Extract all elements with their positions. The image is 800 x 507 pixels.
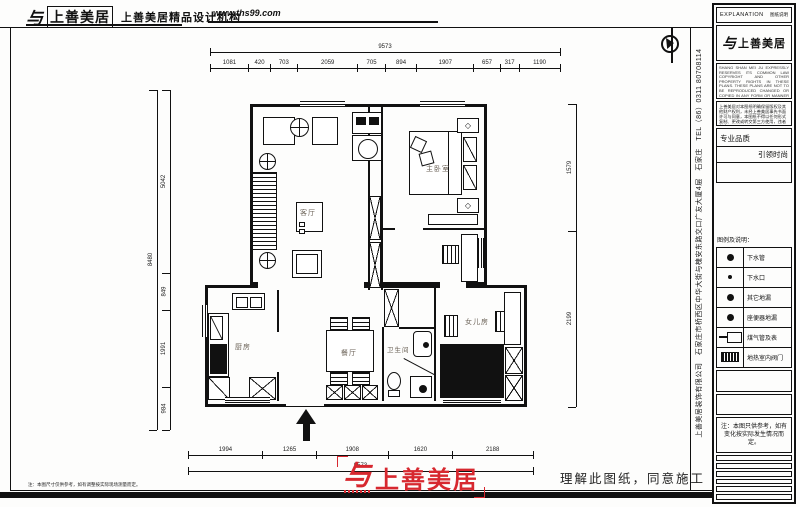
dimension-label: 2059 (320, 60, 335, 67)
quality-slogan-box: 专业品质 引领时尚 (716, 128, 792, 183)
wardrobe-xbox (505, 347, 523, 374)
logo-glyph-icon: 与 (722, 33, 736, 53)
frame-right-border (690, 27, 691, 491)
window (225, 397, 270, 403)
wardrobe (504, 292, 521, 345)
dimension-label: 2188 (485, 447, 500, 454)
website-url: www.ths99.com (213, 8, 281, 18)
legend-label: 煤气管及表 (744, 328, 791, 347)
window (443, 397, 501, 403)
stove (352, 112, 382, 134)
door-kitchen (276, 332, 280, 372)
dining-cabinet-xbox (344, 385, 361, 400)
dimension-label: 1994 (218, 447, 233, 454)
legend-label: 其它地漏 (744, 288, 791, 307)
legend-row: 下水口 (717, 268, 791, 288)
footer-logo: 与 上善美居 (337, 456, 485, 498)
dimension-segment: 317 (500, 56, 519, 68)
sink (352, 135, 382, 161)
dimension-segment: 1265 (263, 443, 316, 455)
dimension-segment: 420 (249, 56, 270, 68)
frame-left-border (10, 27, 11, 491)
legend-table: 下水管下水口其它地漏座便器地漏煤气管及表地热室内阀门 (716, 247, 792, 368)
dimension-label: 1907 (438, 60, 453, 67)
window (478, 238, 484, 268)
dot-large-icon (717, 248, 744, 267)
empty-row (716, 370, 792, 392)
dimension-segment: 2059 (298, 56, 358, 68)
footer-logo-glyph-wrap: 与 (343, 462, 371, 493)
door-master (395, 227, 423, 231)
logo-dots (344, 490, 370, 493)
dimension-label: 984 (161, 402, 168, 414)
dimension-label: 2199 (567, 311, 574, 326)
dimension-segment: 9573 (210, 40, 560, 52)
copyright-chinese: 上善美居对本图纸明确保留版权及其他财产权利，未经上善美居事先书面许可与同意，本图… (716, 101, 792, 126)
opening-living-dining (258, 282, 364, 290)
dimension-segment: 894 (385, 56, 417, 68)
bath-sink (413, 331, 432, 357)
wall-daughter-left (434, 288, 436, 401)
dimension-label: 849 (161, 285, 168, 297)
legend-label: 座便器地漏 (744, 308, 791, 327)
room-label-living: 客厅 (300, 208, 316, 218)
dimension-label: 1579 (567, 160, 574, 175)
legend-label: 下水口 (744, 268, 791, 287)
round-table (290, 118, 309, 137)
explanation-title-zh: 图纸说明 (770, 12, 788, 18)
dimension-label: 1265 (282, 447, 297, 454)
legend-row: 下水管 (717, 248, 791, 268)
thin-row (716, 486, 792, 492)
dimension-label: 703 (278, 60, 290, 67)
dimension-label: 657 (481, 60, 493, 67)
dimension-segment: 705 (358, 56, 385, 68)
frame-top-rule (0, 27, 712, 28)
empty-row (716, 394, 792, 416)
sofa (252, 172, 277, 250)
quality-top: 专业品质 (717, 129, 791, 147)
shaft-xbox (369, 242, 381, 288)
bed-bench (428, 214, 478, 225)
room-label-kitchen: 厨房 (235, 342, 251, 352)
dimension-segment: 1991 (159, 311, 170, 388)
dim-left-total: 8480 (146, 90, 158, 430)
legend-row: 其它地漏 (717, 288, 791, 308)
dining-chair (330, 372, 348, 385)
bed-daughter (440, 344, 504, 398)
quality-bottom: 引领时尚 (717, 147, 791, 163)
entry-arrow-stem (303, 424, 310, 441)
radiator (444, 315, 458, 337)
dimension-label: 5042 (161, 173, 168, 188)
dim-top-segments: 1081420703205970589419076573171190 (210, 56, 560, 69)
website-underline (208, 21, 438, 23)
copyright-english: SHANG SHAN MEI JU EXPRESSLY RESERVES ITS… (716, 63, 792, 99)
footer-logo-text: 上善美居 (375, 460, 479, 495)
approval-slogan: 理解此图纸，同意施工 (470, 468, 705, 487)
legend-label: 下水管 (744, 248, 791, 267)
dimension-label: 8480 (148, 252, 155, 267)
footer-note: 注：本图尺寸仅供参考，如有调整按实际现场测量而定。 (28, 482, 141, 488)
nightstand: ◇ (457, 118, 479, 133)
window (202, 305, 208, 337)
legend-row: 地热室内阀门 (717, 348, 791, 367)
thin-row (716, 494, 792, 500)
toilet-tank (388, 390, 400, 397)
heat-valve-icon (717, 348, 744, 367)
desk-chair (442, 245, 459, 264)
dimension-segment: 657 (474, 56, 500, 68)
dimension-segment: 1994 (188, 443, 263, 455)
thin-row (716, 463, 792, 469)
dimension-segment: 703 (270, 56, 297, 68)
title-block-panel: EXPLANATION 图纸说明 与 上善美居 SHANG SHAN MEI J… (712, 3, 796, 504)
opening-corridor (440, 282, 466, 290)
washing-machine (410, 376, 432, 398)
side-table (259, 153, 276, 170)
legend-title-area: 图例及说明： (716, 185, 792, 245)
dim-left-segments: 50428491991984 (159, 90, 171, 430)
room-label-dining: 餐厅 (341, 348, 357, 358)
refrigerator (210, 344, 227, 374)
dimension-segment: 1190 (519, 56, 560, 68)
dot-large-icon (717, 308, 744, 327)
pillow (463, 137, 477, 162)
shaft-xbox (384, 289, 399, 327)
opening-entry-door (286, 397, 324, 406)
dot-large-icon (717, 288, 744, 307)
dimension-segment: 5042 (159, 90, 170, 273)
room-label-master: 主卧室 (426, 164, 450, 174)
dimension-label: 1908 (345, 447, 360, 454)
dimension-segment: 1081 (210, 56, 249, 68)
toilet (387, 372, 401, 390)
company-address-vertical: 上善美居装饰有限公司 石家庄市桥西区中华大街与槐安东路交口广友大厦4层 石家庄 … (694, 28, 704, 458)
dim-top-total: 9573 (210, 40, 560, 53)
legend-row: 煤气管及表 (717, 328, 791, 348)
dimension-segment: 8480 (146, 90, 157, 430)
entry-arrow-icon (296, 409, 316, 424)
dining-cabinet-xbox (362, 385, 378, 400)
panel-title-row: EXPLANATION 图纸说明 (716, 7, 792, 23)
window (420, 101, 465, 107)
dimension-label: 9573 (377, 44, 392, 51)
dot-small-icon (717, 268, 744, 287)
kitchen-window-panel (210, 316, 223, 340)
panel-note: 注：本图只供参考，如有变化按实际发生情况而定。 (716, 417, 792, 453)
shaft-xbox (369, 196, 381, 240)
small-stool (299, 222, 305, 227)
dimension-segment: 2188 (452, 443, 533, 455)
blueprint-page: 与 上善美居 上善美居精品设计机构 www.ths99.com 9573 108… (0, 0, 800, 507)
dimension-label: 1991 (161, 341, 168, 356)
side-table (259, 252, 276, 269)
dimension-segment: 2199 (565, 232, 576, 407)
dimension-label: 1190 (532, 60, 547, 67)
dimension-label: 894 (395, 60, 407, 67)
thin-row (716, 479, 792, 485)
dimension-label: 705 (366, 60, 378, 67)
single-chair (292, 250, 322, 278)
pillow (463, 165, 477, 190)
kitchen-sink (232, 293, 265, 310)
thin-row (716, 455, 792, 461)
gas-meter-icon (717, 328, 744, 347)
dimension-segment: 849 (159, 273, 170, 311)
dim-bottom-segments: 19941265190816202188 (188, 443, 533, 456)
window (300, 101, 345, 107)
dimension-segment: 984 (159, 388, 170, 430)
room-label-daughter: 女儿房 (465, 317, 489, 327)
explanation-title: EXPLANATION (720, 12, 764, 18)
dining-cabinet-xbox (326, 385, 343, 400)
header-underline (26, 24, 182, 26)
room-label-bath: 卫生间 (387, 344, 410, 354)
armchair (312, 117, 338, 145)
nightstand: ◇ (457, 198, 479, 213)
dimension-segment: 1907 (417, 56, 474, 68)
dining-chair (330, 317, 348, 330)
dining-chair (352, 372, 370, 385)
dining-chair (352, 317, 370, 330)
dimension-segment: 1908 (316, 443, 388, 455)
legend-title: 图例及说明： (716, 234, 754, 245)
thin-row (716, 471, 792, 477)
logo-glyph-icon: 与 (343, 462, 371, 490)
dimension-segment: 1579 (565, 104, 576, 232)
panel-logo: 与 上善美居 (716, 25, 792, 61)
dimension-label: 1081 (222, 60, 237, 67)
dimension-segment: 1620 (388, 443, 452, 455)
wardrobe-xbox (505, 375, 523, 401)
dimension-label: 1620 (413, 447, 428, 454)
dimension-label: 420 (254, 60, 266, 67)
dimension-label: 317 (504, 60, 516, 67)
panel-logo-text: 上善美居 (738, 35, 786, 51)
legend-row: 座便器地漏 (717, 308, 791, 328)
legend-label: 地热室内阀门 (744, 348, 791, 367)
wall-bath-left (382, 327, 384, 401)
dim-right-segments: 15792199 (565, 104, 577, 407)
small-stool (299, 229, 305, 234)
closet (461, 234, 478, 282)
